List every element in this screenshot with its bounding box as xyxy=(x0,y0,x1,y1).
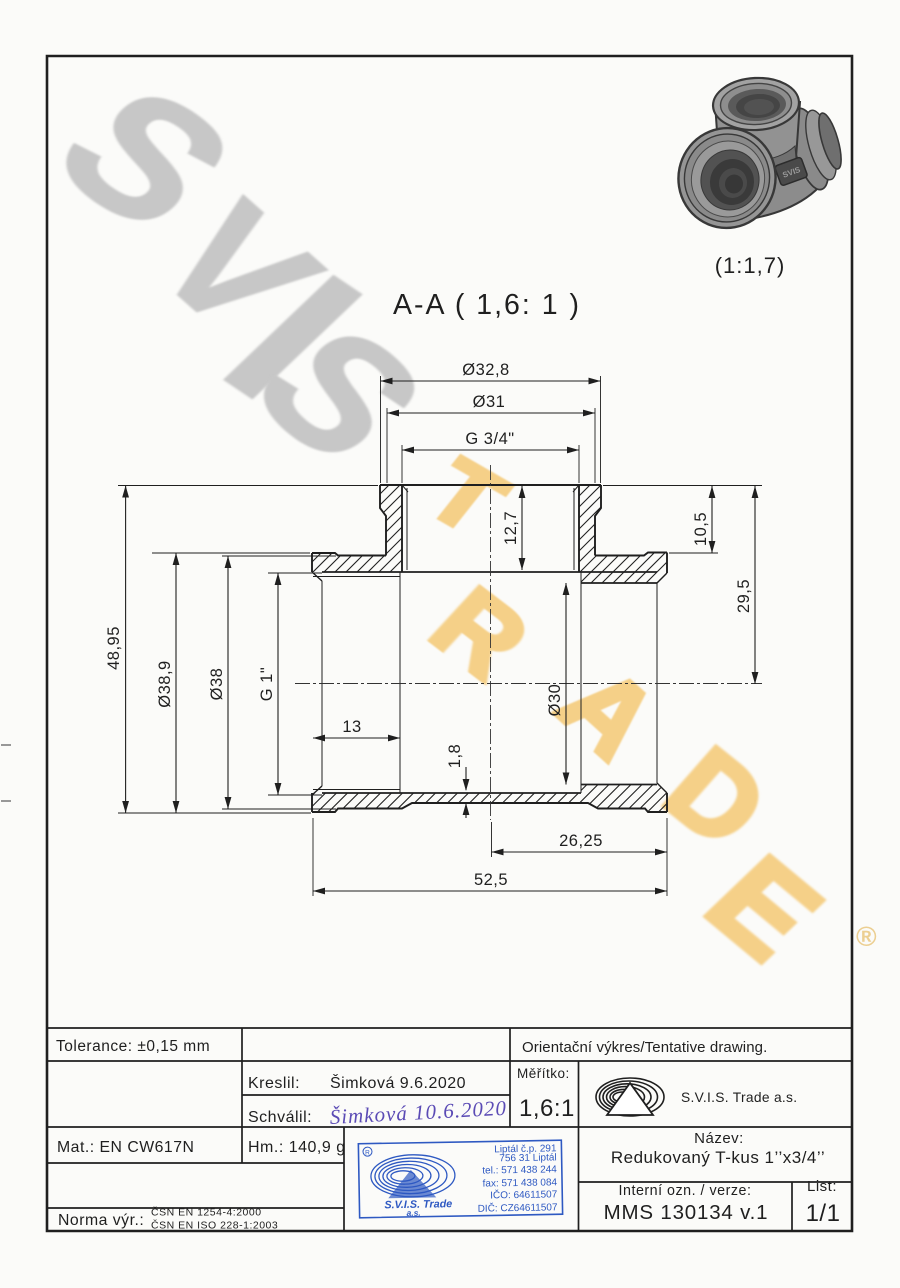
svg-text:Ø30: Ø30 xyxy=(546,684,564,717)
svg-text:Hm.: 140,9 g: Hm.: 140,9 g xyxy=(248,1139,346,1156)
svg-text:(1:1,7): (1:1,7) xyxy=(715,253,786,278)
svg-text:Norma výr.:: Norma výr.: xyxy=(58,1212,144,1229)
svg-text:1/1: 1/1 xyxy=(806,1200,841,1227)
svg-text:Ø31: Ø31 xyxy=(473,393,506,411)
svg-text:R: R xyxy=(365,1150,370,1157)
svg-text:tel.: 571 438 244: tel.: 571 438 244 xyxy=(482,1164,557,1176)
svg-text:MMS 130134 v.1: MMS 130134 v.1 xyxy=(604,1201,769,1224)
svg-text:ČSN EN ISO 228-1:2003: ČSN EN ISO 228-1:2003 xyxy=(151,1219,278,1232)
svg-text:Redukovaný T-kus 1’’x3/4’’: Redukovaný T-kus 1’’x3/4’’ xyxy=(611,1148,825,1167)
svg-text:Ø38,9: Ø38,9 xyxy=(156,660,174,707)
svg-text:Mat.: EN CW617N: Mat.: EN CW617N xyxy=(57,1139,194,1156)
svg-text:DIČ: CZ64611507: DIČ: CZ64611507 xyxy=(478,1200,559,1214)
svg-text:a.s.: a.s. xyxy=(406,1208,420,1218)
svg-text:Šimková 9.6.2020: Šimková 9.6.2020 xyxy=(330,1073,466,1092)
svg-text:Orientační výkres/Tentative dr: Orientační výkres/Tentative drawing. xyxy=(522,1039,767,1056)
svg-text:Měřítko:: Měřítko: xyxy=(517,1066,570,1081)
svg-text:G 3/4": G 3/4" xyxy=(465,430,514,448)
svg-text:G 1": G 1" xyxy=(258,667,276,701)
svg-text:52,5: 52,5 xyxy=(474,871,508,889)
svg-text:Tolerance: ±0,15 mm: Tolerance: ±0,15 mm xyxy=(56,1038,210,1055)
svg-text:IČO: 64611507: IČO: 64611507 xyxy=(490,1187,558,1201)
svg-text:1,8: 1,8 xyxy=(446,744,464,768)
svg-text:ČSN EN 1254-4:2000: ČSN EN 1254-4:2000 xyxy=(151,1206,262,1219)
svg-text:29,5: 29,5 xyxy=(735,579,753,613)
svg-text:List:: List: xyxy=(807,1178,837,1195)
svg-text:12,7: 12,7 xyxy=(502,511,520,545)
svg-text:26,25: 26,25 xyxy=(559,832,603,850)
svg-text:Ø32,8: Ø32,8 xyxy=(462,361,509,379)
svg-text:Název:: Název: xyxy=(694,1130,744,1147)
svg-text:Ø38: Ø38 xyxy=(208,668,226,701)
svg-text:Schválil:: Schválil: xyxy=(248,1109,312,1126)
svg-text:fax: 571 438 084: fax: 571 438 084 xyxy=(482,1177,557,1189)
svg-text:1,6:1: 1,6:1 xyxy=(519,1095,575,1122)
svg-text:13: 13 xyxy=(342,718,361,736)
svg-text:10,5: 10,5 xyxy=(692,512,710,546)
svg-text:A-A ( 1,6: 1 ): A-A ( 1,6: 1 ) xyxy=(393,289,581,321)
svg-text:Šimková 10.6.2020: Šimková 10.6.2020 xyxy=(329,1096,507,1129)
svg-text:Kreslil:: Kreslil: xyxy=(248,1075,300,1092)
svg-text:48,95: 48,95 xyxy=(105,626,123,670)
svg-text:S.V.I.S. Trade a.s.: S.V.I.S. Trade a.s. xyxy=(681,1090,797,1105)
svg-text:Interní ozn. / verze:: Interní ozn. / verze: xyxy=(619,1183,752,1199)
svg-text:756 31 Liptál: 756 31 Liptál xyxy=(499,1152,556,1164)
